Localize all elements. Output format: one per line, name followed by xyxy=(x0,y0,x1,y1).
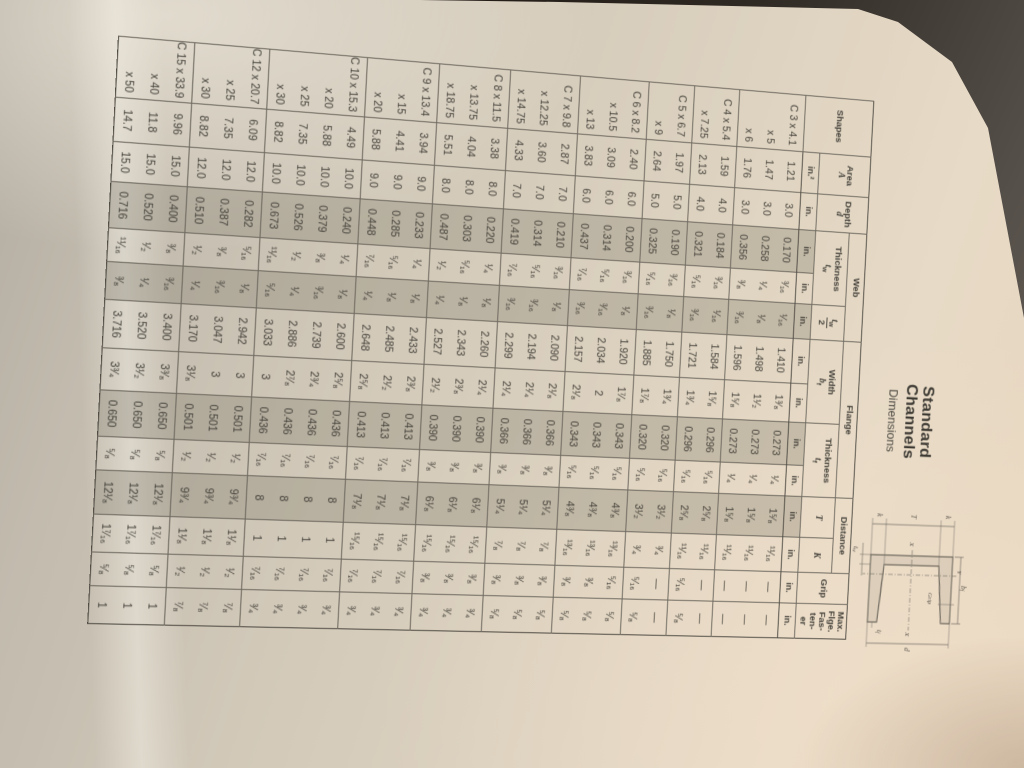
value-cell: 1.76 xyxy=(735,146,759,189)
unit-cell: in. xyxy=(785,465,804,497)
value-cell: ⁵⁄₈ xyxy=(528,597,553,634)
diagram-label-k-top: k xyxy=(944,516,952,520)
value-cell: ⁷⁄₁₆ xyxy=(291,558,317,592)
unit-cell: in. xyxy=(787,422,806,465)
value-cell: 2⁵⁄₈ xyxy=(694,493,719,535)
value-cell: ³⁄₄ xyxy=(386,593,412,630)
value-cell: 8 xyxy=(270,477,297,521)
table-body: C 3 x 4.11.213.00.170³⁄₁₆¹⁄₁₆1.4101³⁄₈0.… xyxy=(88,36,806,638)
value-cell: 1¹⁄₈ xyxy=(218,518,245,556)
value-cell: ⁵⁄₈ xyxy=(505,596,530,633)
value-cell: 0.343 xyxy=(607,414,632,459)
value-cell: 0.258 xyxy=(753,226,777,270)
channel-dimensions-table: Shapes AreaA Depthd Web Flange Distance … xyxy=(87,36,874,640)
col-header-area: AreaA xyxy=(818,153,871,198)
value-cell: ⁷⁄₁₆ xyxy=(242,556,269,590)
value-cell: ¹³⁄₁₆ xyxy=(555,529,580,566)
value-cell: ¹¹⁄₁₆ xyxy=(669,533,693,569)
value-cell: ¹⁄₄ xyxy=(131,263,158,302)
value-cell: 2.299 xyxy=(495,322,521,370)
value-cell: — xyxy=(735,571,758,603)
value-cell: ¹¹⁄₁₆ xyxy=(759,536,783,572)
value-cell: 0.650 xyxy=(123,391,151,438)
value-cell: 0.520 xyxy=(134,183,162,231)
value-cell: 4³⁄₈ xyxy=(603,489,628,531)
shape-designation: x 30 xyxy=(192,43,221,106)
value-cell: 0.210 xyxy=(548,212,574,258)
value-cell: ⁵⁄₈ xyxy=(141,553,168,587)
value-cell: 1.97 xyxy=(667,141,692,184)
value-cell: ³⁄₈ xyxy=(436,562,461,595)
value-cell: ¹⁄₈ xyxy=(330,275,356,313)
diagram-label-tw: tw xyxy=(850,546,860,552)
value-cell: ¹⁄₈ xyxy=(231,269,258,308)
value-cell: ³⁄₈ xyxy=(483,563,508,596)
value-cell: ¹¹⁄₁₆ xyxy=(715,535,739,571)
value-cell: 2¹⁄₂ xyxy=(374,362,400,404)
value-cell: ⁵⁄₈ xyxy=(551,597,576,633)
value-cell: 0.366 xyxy=(491,408,517,453)
value-cell: 8.82 xyxy=(189,103,217,149)
value-cell: ³⁄₈ xyxy=(412,561,438,594)
value-cell: 2⁷⁄₈ xyxy=(277,357,303,399)
value-cell: 7.0 xyxy=(503,171,529,211)
value-cell: 0.379 xyxy=(309,195,335,242)
shape-designation: x 40 xyxy=(141,38,169,101)
value-cell: ³⁄₈ xyxy=(729,268,753,301)
value-cell: 2.87 xyxy=(552,132,578,176)
diagram-label-T: T xyxy=(909,515,917,520)
col-header-shapes: Shapes xyxy=(803,95,874,157)
value-cell: ³⁄₁₆ xyxy=(706,267,730,300)
value-cell: 1.750 xyxy=(657,331,682,378)
value-cell: 2.433 xyxy=(400,316,427,364)
value-cell: ³⁄₈ xyxy=(465,452,490,485)
value-cell: 12.0 xyxy=(237,151,264,192)
value-cell: 1.59 xyxy=(712,145,737,188)
value-cell: 2³⁄₈ xyxy=(398,363,424,405)
value-cell: 0.487 xyxy=(430,204,456,250)
value-cell: ¹⁄₂ xyxy=(198,440,224,474)
value-cell: ¹¹⁄₁₆ xyxy=(692,534,716,570)
value-cell: ⁵⁄₈ xyxy=(666,600,691,636)
value-cell: 0.510 xyxy=(185,187,213,235)
value-cell: 0.650 xyxy=(149,392,177,439)
value-cell: ⁷⁄₁₆ xyxy=(356,244,382,278)
unit-cell: in. xyxy=(793,303,812,339)
value-cell: — xyxy=(755,602,779,638)
value-cell: 10.0 xyxy=(336,158,363,199)
value-cell: ¹⁄₂ xyxy=(172,439,199,473)
value-cell: ⁵⁄₁₆ xyxy=(651,459,675,491)
value-cell: 2.600 xyxy=(327,312,354,360)
value-cell: ¹⁄₄ xyxy=(332,242,358,276)
shape-designation: x 14.75 xyxy=(508,70,535,130)
value-cell: 3.09 xyxy=(599,136,624,180)
value-cell: ⁵⁄₈ xyxy=(90,552,118,586)
value-cell: ³⁄₄ xyxy=(362,593,388,630)
value-cell: 3.716 xyxy=(102,299,130,349)
value-cell: 2.260 xyxy=(471,320,497,368)
value-cell: 12.0 xyxy=(213,149,240,190)
value-cell: 0.240 xyxy=(333,197,360,244)
value-cell: 2.739 xyxy=(303,311,330,360)
value-cell: ¹⁄₄ xyxy=(281,272,307,311)
value-cell: 4.41 xyxy=(387,119,413,164)
value-cell: 1³⁄₈ xyxy=(767,382,791,422)
shape-designation: x 30 xyxy=(267,49,295,111)
value-cell: 10.0 xyxy=(262,153,289,194)
value-cell: ¹⁄₈ xyxy=(379,278,405,316)
value-cell: 1⁵⁄₈ xyxy=(739,494,763,536)
diagram-label-grip: Grip xyxy=(926,593,933,606)
value-cell: ⁵⁄₁₆ xyxy=(638,262,663,295)
photo-of-manual-page: { "photo": { "background_dark": "#211a15… xyxy=(0,0,1024,768)
value-cell: 0.437 xyxy=(571,214,597,259)
value-cell: ¹⁄₄ xyxy=(476,252,501,286)
value-cell: 8 xyxy=(295,477,321,521)
value-cell: 0.413 xyxy=(347,402,374,448)
value-cell: ³⁄₈ xyxy=(489,453,514,486)
shape-designation: C 12 x 20.7 xyxy=(242,47,270,109)
value-cell: ³⁄₁₆ xyxy=(306,274,332,312)
value-cell: 0.233 xyxy=(406,202,432,248)
diagram-label-x-left: X xyxy=(908,541,915,547)
value-cell: ⁷⁄₁₆ xyxy=(345,447,371,481)
value-cell: 0.190 xyxy=(663,220,688,265)
value-cell: 0.314 xyxy=(525,211,550,257)
unit-cell: in. xyxy=(779,572,798,604)
value-cell: 0.273 xyxy=(743,420,767,464)
value-cell: 0.501 xyxy=(174,393,202,440)
value-cell: ⁵⁄₁₆ xyxy=(452,250,477,284)
value-cell: ³⁄₁₆ xyxy=(521,287,546,324)
value-cell: 1.498 xyxy=(747,336,771,382)
value-cell: 1.920 xyxy=(611,328,636,375)
value-cell: ¹³⁄₁₆ xyxy=(601,531,626,567)
shape-designation: x 25 xyxy=(292,51,319,113)
unit-cell: in. xyxy=(781,537,800,572)
value-cell: 6.0 xyxy=(619,179,644,218)
value-cell: 9³⁄₄ xyxy=(170,473,198,518)
value-cell: 0.314 xyxy=(594,215,619,260)
value-cell: 14.7 xyxy=(113,97,141,143)
value-cell: 7.35 xyxy=(289,111,316,156)
value-cell: 3.0 xyxy=(755,189,779,228)
value-cell: 8 xyxy=(319,478,346,522)
value-cell: ³⁄₁₆ xyxy=(636,294,661,331)
unit-cell: in.² xyxy=(801,152,820,194)
value-cell: ¹⁄₂ xyxy=(192,555,218,589)
value-cell: 12¹⁄₈ xyxy=(93,470,121,515)
value-cell: ¹⁄₈ xyxy=(613,292,638,329)
value-cell: 2.194 xyxy=(519,323,544,370)
value-cell: ⁵⁄₁₆ xyxy=(559,455,584,488)
value-cell: ³⁄₈ xyxy=(536,454,561,487)
value-cell: — xyxy=(645,568,669,600)
value-cell: 2¹⁄₈ xyxy=(563,372,588,413)
value-cell: ¹¹⁄₁₆ xyxy=(737,535,761,571)
value-cell: ⁵⁄₁₆ xyxy=(668,569,692,601)
value-cell: 5.88 xyxy=(314,113,340,158)
value-cell: 0.436 xyxy=(298,399,325,445)
value-cell: ⁵⁄₈ xyxy=(122,437,149,472)
value-cell: ³⁄₁₆ xyxy=(661,264,685,297)
value-cell: 3.170 xyxy=(179,304,207,353)
value-cell: 0.436 xyxy=(274,398,301,444)
value-cell: ³⁄₈ xyxy=(105,261,133,300)
value-cell: 1⁵⁄₈ xyxy=(716,493,741,535)
value-cell: 5¹⁄₄ xyxy=(533,486,559,529)
value-cell: 1⁷⁄₈ xyxy=(609,374,634,415)
value-cell: 5.0 xyxy=(665,183,690,222)
value-cell: 1 xyxy=(139,587,167,625)
value-cell: 3³⁄₈ xyxy=(151,350,179,393)
value-cell: 0.296 xyxy=(698,418,723,462)
shape-designation: x 15 xyxy=(389,60,416,121)
value-cell: 2.13 xyxy=(690,143,715,186)
value-cell: 12¹⁄₈ xyxy=(144,472,172,517)
value-cell: 5.88 xyxy=(362,117,389,162)
value-cell: ⁷⁄₁₆ xyxy=(321,446,347,480)
value-cell: ⁵⁄₁₆ xyxy=(381,245,406,279)
value-cell: 1 xyxy=(317,521,343,559)
value-cell: 0.343 xyxy=(584,413,609,458)
value-cell: 1⁷⁄₁₆ xyxy=(91,514,119,553)
value-cell: ¹⁄₈ xyxy=(474,284,500,322)
value-cell: 1.885 xyxy=(634,330,659,377)
value-cell: ⁷⁄₈ xyxy=(190,588,217,626)
value-cell: ⁵⁄₁₆ xyxy=(622,567,647,599)
value-cell: ³⁄₈ xyxy=(513,453,538,486)
value-cell: 3.0 xyxy=(777,191,801,230)
value-cell: 2¹⁄₄ xyxy=(517,369,542,410)
value-cell: 1 xyxy=(293,521,319,559)
value-cell: ¹⁵⁄₁₆ xyxy=(461,526,487,563)
value-cell: ³⁄₈ xyxy=(208,234,234,269)
value-cell: 3 xyxy=(227,354,254,397)
value-cell: 2.157 xyxy=(565,326,591,373)
value-cell: ⁷⁄₁₆ xyxy=(267,557,293,591)
value-cell: 7.0 xyxy=(550,174,575,214)
value-cell: 2³⁄₄ xyxy=(301,358,327,400)
value-cell: 3.033 xyxy=(254,308,281,357)
value-cell: 7¹⁄₈ xyxy=(343,479,370,523)
value-cell: ¹¹⁄₁₆ xyxy=(258,238,285,273)
value-cell: ³⁄₈ xyxy=(459,563,484,596)
value-cell: 0.390 xyxy=(420,405,446,451)
value-cell: ⁷⁄₁₆ xyxy=(272,444,298,478)
value-cell: 0.321 xyxy=(685,222,710,267)
value-cell: 2.886 xyxy=(279,309,306,358)
shape-designation: C 15 x 33.9 xyxy=(166,41,195,104)
value-cell: ¹⁄₈ xyxy=(659,295,684,332)
shape-designation: x 10.5 xyxy=(601,78,627,138)
shape-designation: x 5 xyxy=(759,92,784,150)
value-cell: 0.184 xyxy=(708,223,733,268)
value-cell: ³⁄₁₆ xyxy=(546,256,571,289)
value-cell: ¹⁵⁄₁₆ xyxy=(390,524,416,561)
value-cell: ⁷⁄₁₆ xyxy=(340,559,366,592)
value-cell: ¹⁵⁄₁₆ xyxy=(414,525,440,562)
diagram-label-tf: tf xyxy=(874,630,884,635)
value-cell: 0.436 xyxy=(249,397,276,444)
shape-designation: x 13.75 xyxy=(461,66,487,127)
value-cell: ¹⁄₂ xyxy=(183,233,210,268)
shape-designation: x 18.75 xyxy=(437,64,464,125)
unit-cell: in. xyxy=(789,383,808,423)
value-cell: 9³⁄₄ xyxy=(220,475,247,519)
value-cell: 8.0 xyxy=(456,167,481,207)
value-cell: ⁵⁄₁₆ xyxy=(599,567,624,599)
value-cell: 2¹⁄₄ xyxy=(469,367,495,408)
value-cell: ¹⁄₄ xyxy=(354,277,380,315)
value-cell: 1.410 xyxy=(769,337,793,383)
value-cell: ⁷⁄₁₆ xyxy=(569,258,594,291)
value-cell: 2.485 xyxy=(376,315,402,363)
value-cell: ³⁄₈ xyxy=(418,450,444,483)
value-cell: ⁷⁄₁₆ xyxy=(364,560,389,593)
value-cell: ¹⁄₄ xyxy=(181,266,208,305)
value-cell: ³⁄₄ xyxy=(313,591,340,628)
value-cell: ³⁄₄ xyxy=(434,594,459,631)
value-cell: 5.51 xyxy=(434,123,460,167)
value-cell: ¹⁄₈ xyxy=(749,301,773,337)
shape-designation: x 7.25 xyxy=(692,86,718,145)
value-cell: ³⁄₄ xyxy=(647,532,672,568)
col-header-depth: Depthd xyxy=(816,194,869,234)
value-cell: 7.35 xyxy=(215,105,242,151)
shape-designation: C 9 x 13.4 xyxy=(413,62,440,123)
value-cell: ³⁄₄ xyxy=(240,589,267,627)
value-cell: ⁵⁄₁₆ xyxy=(684,265,708,298)
shape-designation: x 12.25 xyxy=(531,72,557,132)
value-cell: ³⁄₄ xyxy=(410,594,436,631)
value-cell: ³⁄₄ xyxy=(265,590,291,628)
shape-designation: C 7 x 9.8 xyxy=(554,74,580,134)
col-header-web-thickness: Thickness tw xyxy=(812,231,849,307)
value-cell: ⁷⁄₁₆ xyxy=(499,253,524,287)
value-cell: 3¹⁄₂ xyxy=(126,349,153,392)
col-header-flange-width: Width bf xyxy=(806,339,844,424)
value-cell: 5¹⁄₄ xyxy=(487,485,513,528)
value-cell: 12¹⁄₈ xyxy=(119,471,146,516)
value-cell: ³⁄₈ xyxy=(507,564,532,597)
value-cell: ⁵⁄₈ xyxy=(96,436,124,471)
value-cell: ⁷⁄₈ xyxy=(509,528,534,565)
value-cell: ¹⁵⁄₁₆ xyxy=(438,525,463,562)
value-cell: 1¹⁄₈ xyxy=(193,517,220,555)
value-cell: ³⁄₁₆ xyxy=(727,299,751,336)
value-cell: ¹⁄₂ xyxy=(428,249,454,283)
value-cell: 5¹⁄₄ xyxy=(510,486,535,529)
value-cell: ³⁄₄ xyxy=(624,532,649,568)
value-cell: 4.49 xyxy=(338,115,365,160)
value-cell: — xyxy=(643,600,668,636)
value-cell: — xyxy=(734,602,758,638)
col-header-tw-over-2: tw 2 xyxy=(810,304,845,341)
value-cell: ⁵⁄₈ xyxy=(597,598,622,634)
diagram-label-y: Y xyxy=(956,571,963,576)
unit-cell: in. xyxy=(791,338,810,384)
value-cell: ¹⁄₄ xyxy=(404,247,430,281)
value-cell: 10.0 xyxy=(312,156,338,197)
value-cell: ⁵⁄₁₆ xyxy=(582,456,606,489)
value-cell: 9.96 xyxy=(164,101,192,147)
shape-designation: C 5 x 6.7 xyxy=(669,84,695,143)
value-cell: ³⁄₁₆ xyxy=(207,268,234,307)
page-title: Standard Channels Dimensions xyxy=(881,340,938,503)
value-cell: 2⁵⁄₈ xyxy=(325,359,352,401)
value-cell: ³⁄₈ xyxy=(307,241,333,275)
value-cell: 0.366 xyxy=(514,409,539,454)
value-cell: ¹⁵⁄₁₆ xyxy=(366,523,392,560)
value-cell: ¹⁄₄ xyxy=(751,269,774,302)
value-cell: 6¹⁄₈ xyxy=(416,482,442,525)
value-cell: 0.282 xyxy=(235,190,262,237)
value-cell: ¹⁄₂ xyxy=(133,229,160,264)
value-cell: 12.0 xyxy=(187,147,214,188)
unit-cell: in. xyxy=(795,272,813,304)
value-cell: 3¹⁄₂ xyxy=(649,491,674,533)
value-cell: 1⁵⁄₈ xyxy=(700,379,725,419)
value-cell: 3.83 xyxy=(575,134,600,178)
col-header-T: T xyxy=(800,497,836,539)
value-cell: 2 xyxy=(586,373,611,414)
value-cell: 8 xyxy=(245,476,272,520)
value-cell: 0.501 xyxy=(199,395,226,442)
value-cell: 4.0 xyxy=(710,186,734,225)
value-cell: ¹⁄₂ xyxy=(283,239,309,274)
value-cell: 0.400 xyxy=(159,185,187,233)
value-cell: 0.343 xyxy=(561,411,587,456)
value-cell: ³⁄₁₆ xyxy=(498,285,523,323)
value-cell: 0.366 xyxy=(537,410,563,455)
value-cell: 4.33 xyxy=(505,128,531,172)
value-cell: 0.220 xyxy=(477,207,503,253)
value-cell: 10.0 xyxy=(287,155,313,196)
value-cell: 3.38 xyxy=(482,126,508,170)
shape-designation: x 20 xyxy=(364,58,391,119)
value-cell: 0.273 xyxy=(720,419,745,463)
value-cell: 8.82 xyxy=(264,109,291,154)
photo-corner-shade xyxy=(804,638,1024,768)
value-cell: 0.325 xyxy=(640,219,665,264)
value-cell: — xyxy=(689,601,713,637)
value-cell: 8.0 xyxy=(432,165,458,205)
value-cell: ³⁄₄ xyxy=(289,591,315,629)
value-cell: 1⁷⁄₈ xyxy=(632,375,657,416)
value-cell: ¹⁄₂ xyxy=(166,554,193,588)
value-cell: ¹¹⁄₁₆ xyxy=(107,228,135,263)
value-cell: ³⁄₁₆ xyxy=(615,261,640,294)
value-cell: 1⁵⁄₈ xyxy=(761,495,785,537)
manual-page: Standard Channels Dimensions bf xyxy=(92,34,993,660)
value-cell: 2⁵⁄₈ xyxy=(350,361,377,403)
value-cell: 9³⁄₄ xyxy=(195,474,222,519)
value-cell: ⁷⁄₁₆ xyxy=(388,561,414,594)
value-cell: 8.0 xyxy=(480,169,506,209)
value-cell: 0.448 xyxy=(358,199,385,246)
value-cell: ³⁄₈ xyxy=(553,565,578,598)
value-cell: 0.170 xyxy=(775,228,799,272)
shape-designation: C 4 x 5.4 xyxy=(714,88,739,147)
shape-designation: x 13 xyxy=(578,76,604,136)
value-cell: 0.419 xyxy=(501,209,527,255)
value-cell: 0.390 xyxy=(444,406,470,452)
col-header-max-fastener: Max. Flge. Fas- ten- er xyxy=(794,603,847,639)
value-cell: 1 xyxy=(114,586,141,624)
